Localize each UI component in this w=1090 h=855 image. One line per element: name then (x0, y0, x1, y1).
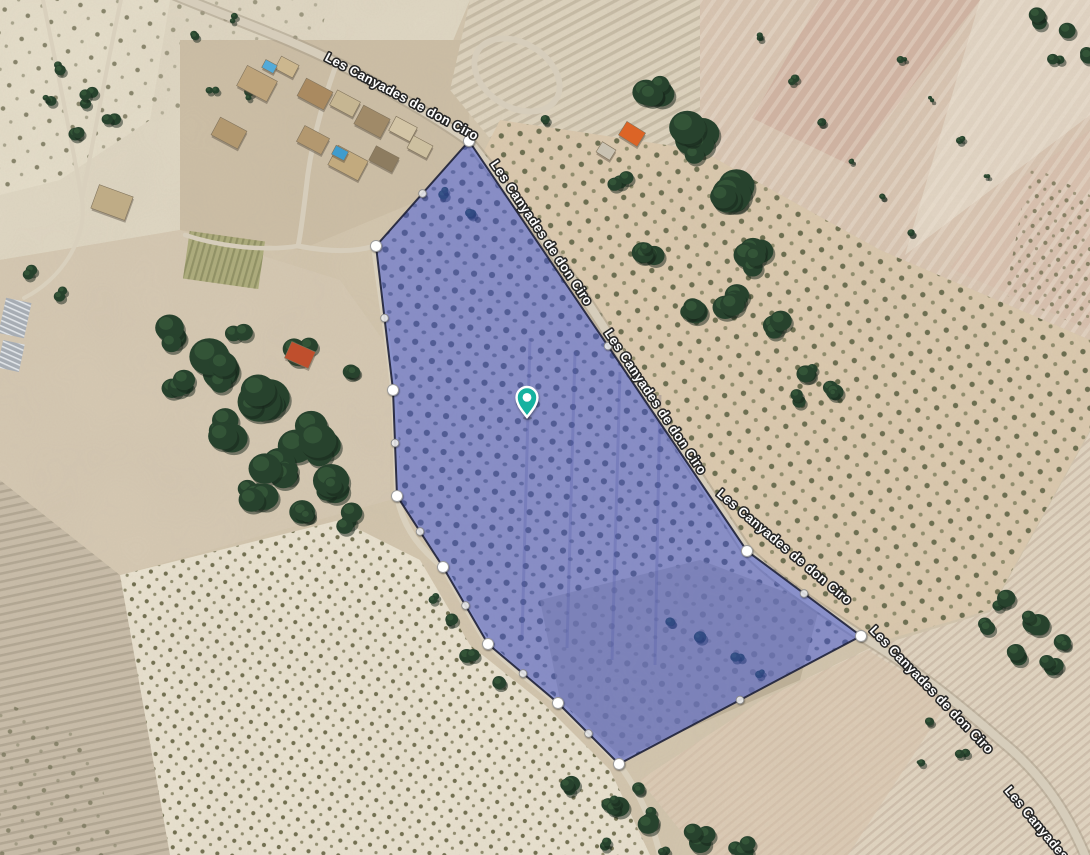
parcel-midpoint-handle[interactable] (585, 730, 593, 738)
parcel-midpoint-handle[interactable] (416, 528, 424, 536)
parcel-vertex-handle[interactable] (371, 241, 382, 252)
parcel-midpoint-handle[interactable] (736, 696, 744, 704)
parcel-vertex-handle[interactable] (438, 562, 449, 573)
parcel-vertex-handle[interactable] (614, 759, 625, 770)
parcel-midpoint-handle[interactable] (462, 602, 470, 610)
parcel-overlay: Les Canyades de don CiroLes Canyades de … (0, 0, 1090, 855)
parcel-vertex-handle[interactable] (742, 546, 753, 557)
parcel-polygon[interactable] (376, 141, 861, 764)
road-label: Les Canyades de don Ciro (323, 49, 482, 143)
satellite-map[interactable]: Les Canyades de don CiroLes Canyades de … (0, 0, 1090, 855)
parcel-midpoint-handle[interactable] (419, 190, 427, 198)
parcel-midpoint-handle[interactable] (800, 590, 808, 598)
parcel-midpoint-handle[interactable] (519, 670, 527, 678)
parcel-midpoint-handle[interactable] (391, 439, 399, 447)
road-label: Les Canyades de don Ciro (867, 623, 997, 757)
parcel-vertex-handle[interactable] (392, 491, 403, 502)
parcel-vertex-handle[interactable] (856, 631, 867, 642)
parcel-midpoint-handle[interactable] (381, 314, 389, 322)
parcel-vertex-handle[interactable] (388, 385, 399, 396)
parcel-vertex-handle[interactable] (483, 639, 494, 650)
parcel-vertex-handle[interactable] (553, 698, 564, 709)
road-label: Les Canyades de don Ciro (1002, 783, 1090, 855)
